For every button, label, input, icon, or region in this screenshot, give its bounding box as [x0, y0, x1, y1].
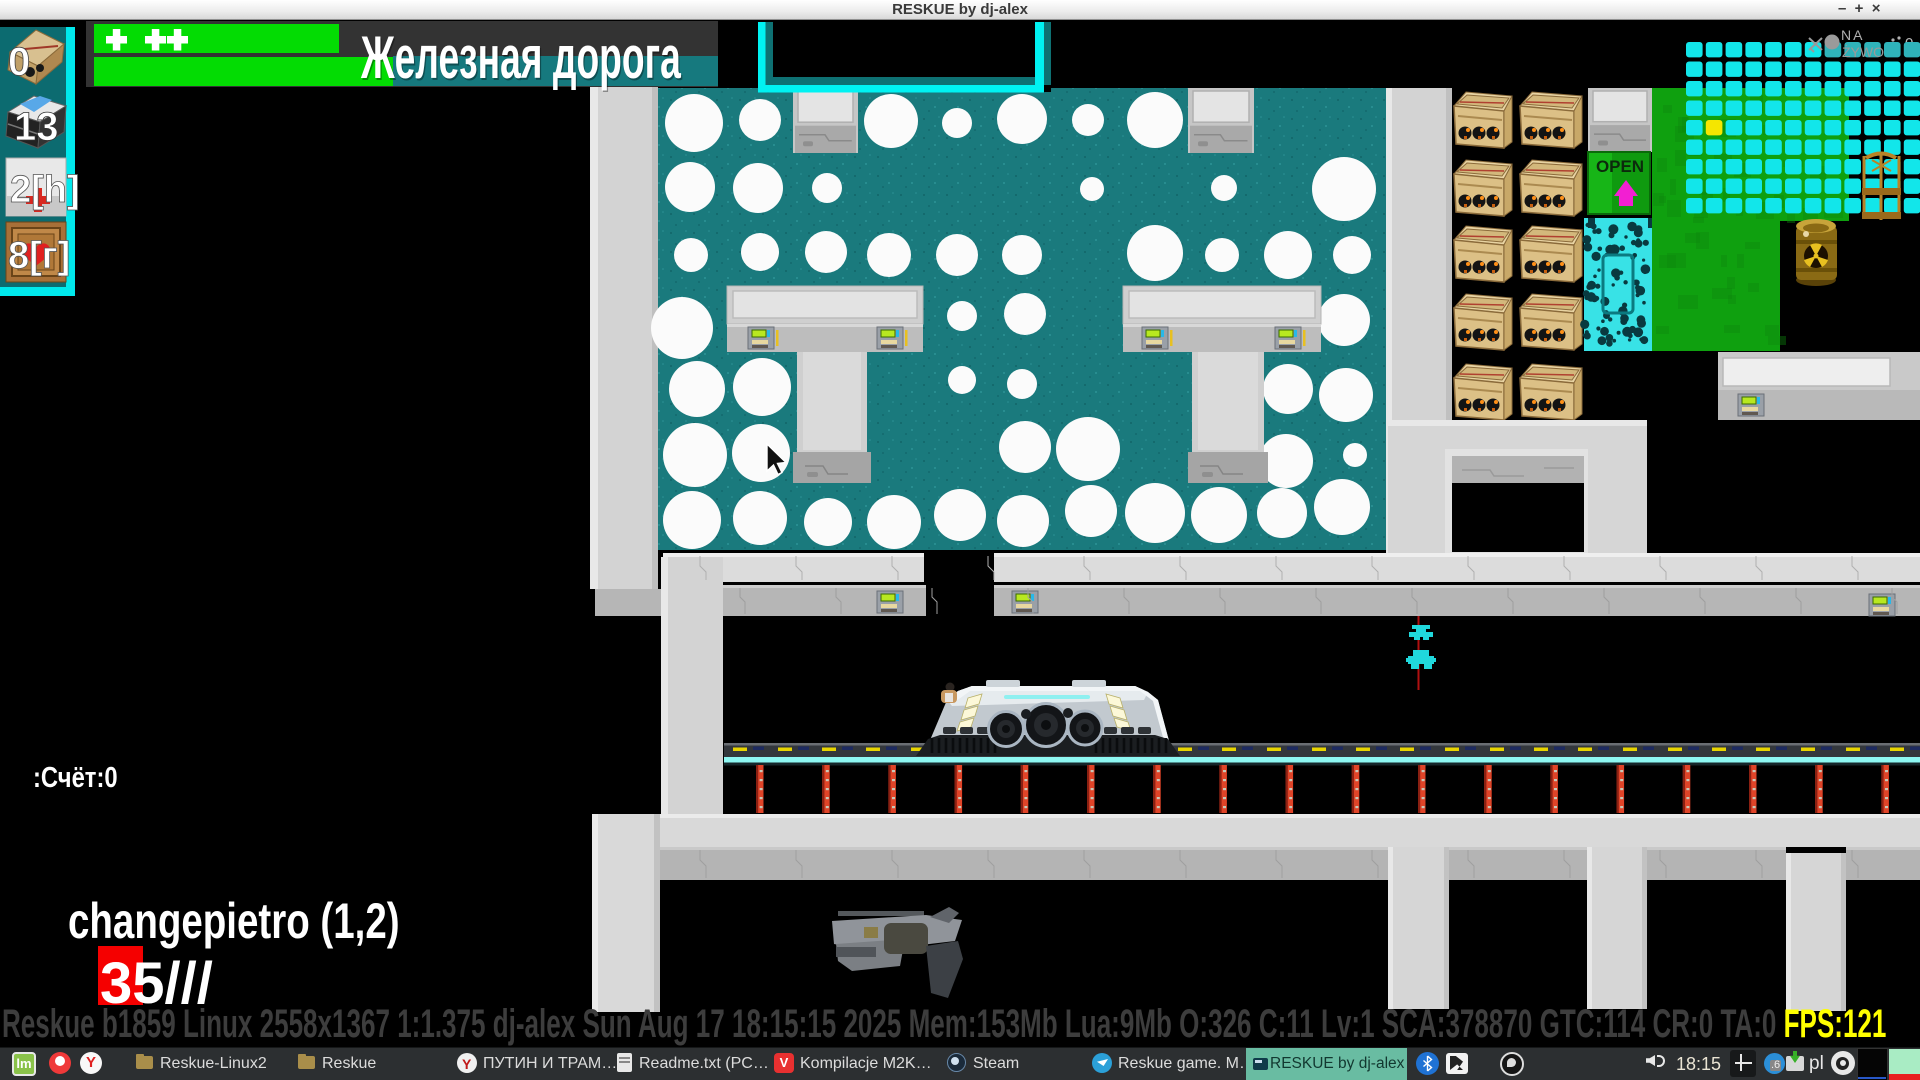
svg-text:8[г]: 8[г] [8, 235, 70, 277]
svg-text:0: 0 [8, 40, 30, 84]
svg-text:2[h]: 2[h] [10, 169, 80, 211]
svg-text:OPEN: OPEN [1596, 157, 1644, 176]
svg-text:NA: NA [1841, 27, 1864, 43]
svg-text:13: 13 [14, 105, 59, 149]
svg-text:ŻYWO: ŻYWO [1842, 43, 1884, 60]
